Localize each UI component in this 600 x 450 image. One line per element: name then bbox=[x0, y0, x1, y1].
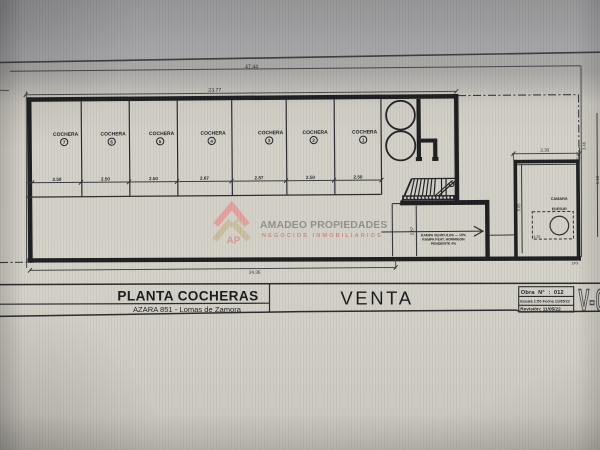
svg-text:2.50: 2.50 bbox=[306, 175, 315, 180]
svg-text:Escala 1:50 Fecha 11/05/22: Escala 1:50 Fecha 11/05/22 bbox=[520, 298, 570, 303]
svg-text:PENDIENTE 4%: PENDIENTE 4% bbox=[431, 242, 456, 246]
svg-text:1P3: 1P3 bbox=[572, 261, 578, 265]
svg-text:COCHERA: COCHERA bbox=[149, 131, 175, 137]
svg-text:COCHERA: COCHERA bbox=[100, 131, 126, 137]
svg-text:2.50: 2.50 bbox=[149, 176, 158, 181]
svg-text:COCHERA: COCHERA bbox=[258, 130, 284, 136]
svg-text:3.46: 3.46 bbox=[582, 141, 587, 150]
svg-text:2.50: 2.50 bbox=[52, 177, 61, 182]
svg-text:EDESUR: EDESUR bbox=[552, 207, 567, 211]
svg-text:AMADEO PROPIEDADES: AMADEO PROPIEDADES bbox=[260, 220, 387, 231]
svg-text:V-0: V-0 bbox=[579, 284, 600, 318]
svg-text:AP: AP bbox=[227, 236, 241, 247]
svg-text:CAMARA: CAMARA bbox=[551, 197, 568, 201]
svg-text:2.87: 2.87 bbox=[200, 176, 209, 181]
svg-text:VENTA: VENTA bbox=[340, 287, 413, 308]
svg-text:AZARA 851 - Lomas de Zamora: AZARA 851 - Lomas de Zamora bbox=[133, 305, 242, 314]
svg-text:2.50: 2.50 bbox=[353, 175, 362, 180]
svg-text:3.30: 3.30 bbox=[540, 148, 549, 153]
svg-text:Obra N° : 012: Obra N° : 012 bbox=[521, 290, 564, 296]
svg-text:4.30: 4.30 bbox=[533, 235, 540, 239]
svg-text:23.77: 23.77 bbox=[208, 88, 221, 94]
svg-text:47.44: 47.44 bbox=[245, 65, 258, 71]
svg-text:Revisión: 11/05/22: Revisión: 11/05/22 bbox=[520, 307, 561, 312]
svg-text:5.05: 5.05 bbox=[516, 203, 521, 212]
svg-text:PLANTA COCHERAS: PLANTA COCHERAS bbox=[117, 289, 258, 304]
svg-text:2.50: 2.50 bbox=[101, 176, 110, 181]
svg-text:NEGOCIOS INMOBILIARIOS: NEGOCIOS INMOBILIARIOS bbox=[262, 233, 383, 239]
svg-text:COCHERA: COCHERA bbox=[302, 130, 328, 136]
svg-text:24.36: 24.36 bbox=[249, 270, 261, 275]
svg-text:2.87: 2.87 bbox=[254, 175, 263, 180]
svg-text:COCHERA: COCHERA bbox=[200, 131, 226, 137]
svg-text:6.18: 6.18 bbox=[595, 175, 600, 184]
svg-text:0.60: 0.60 bbox=[576, 152, 580, 159]
svg-text:COCHERA: COCHERA bbox=[53, 132, 79, 138]
svg-text:2.87: 2.87 bbox=[409, 226, 414, 235]
svg-text:COCHERA: COCHERA bbox=[352, 129, 378, 135]
